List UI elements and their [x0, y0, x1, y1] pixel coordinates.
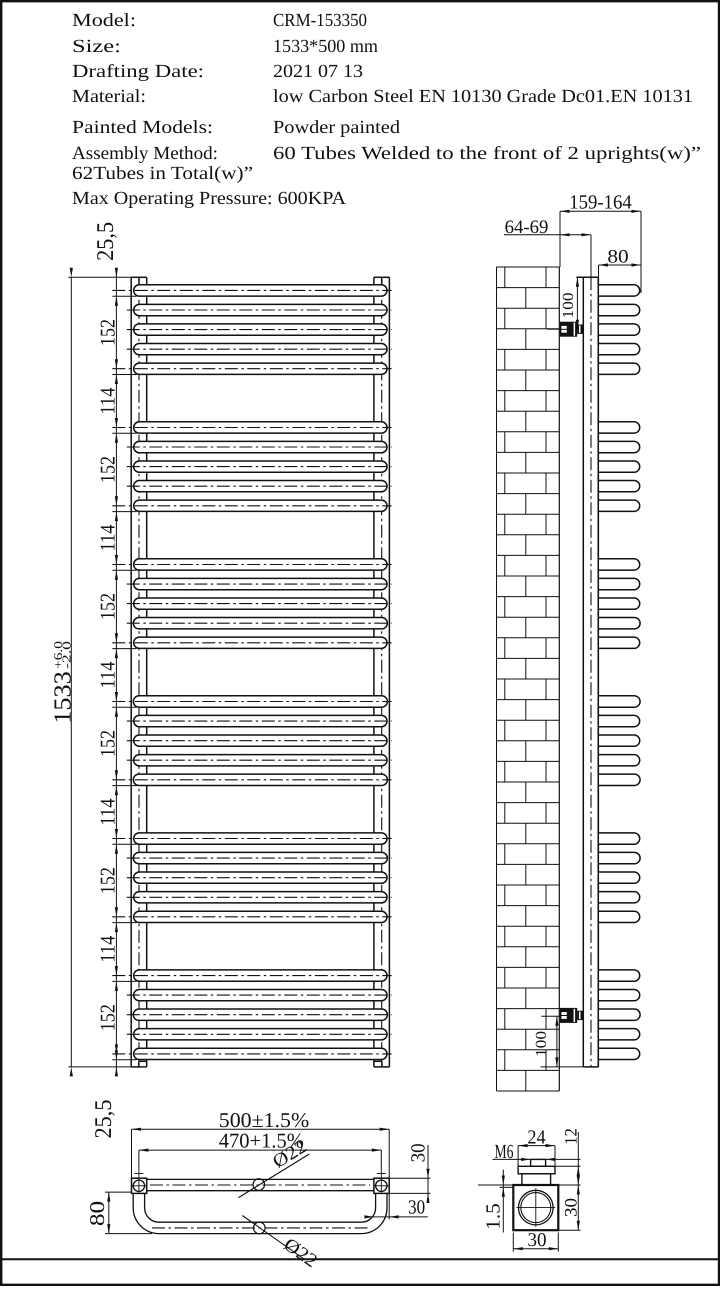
svg-text:Max Operating Pressure: 600KPA: Max Operating Pressure: 600KPA — [72, 189, 347, 209]
svg-text:114: 114 — [96, 935, 120, 962]
svg-text:-2.0: -2.0 — [60, 641, 74, 669]
svg-text:Size:: Size: — [72, 37, 121, 57]
svg-text:152: 152 — [96, 319, 120, 346]
svg-text:Drafting Date:: Drafting Date: — [72, 62, 204, 82]
svg-text:Assembly Method:: Assembly Method: — [72, 144, 218, 164]
svg-text:1533: 1533 — [49, 671, 76, 724]
svg-text:152: 152 — [95, 456, 119, 483]
svg-text:24: 24 — [527, 1127, 545, 1149]
svg-text:152: 152 — [95, 593, 119, 620]
svg-text:30: 30 — [408, 1143, 430, 1162]
svg-text:62Tubes in Total(w)”: 62Tubes in Total(w)” — [72, 164, 253, 184]
svg-text:30: 30 — [408, 1197, 425, 1219]
svg-text:30: 30 — [527, 1230, 546, 1251]
svg-text:Painted Models:: Painted Models: — [72, 118, 213, 138]
svg-text:2021 07 13: 2021 07 13 — [273, 62, 363, 82]
svg-text:159-164: 159-164 — [569, 192, 632, 214]
svg-text:CRM-153350: CRM-153350 — [273, 11, 367, 31]
svg-text:low Carbon Steel EN 10130 Gra: low Carbon Steel EN 10130 Grade Dc01.EN … — [273, 87, 693, 107]
svg-text:114: 114 — [95, 661, 119, 688]
svg-text:152: 152 — [95, 1004, 119, 1031]
svg-text:114: 114 — [96, 798, 120, 825]
svg-text:152: 152 — [96, 867, 120, 894]
svg-text:Material:: Material: — [72, 87, 146, 107]
svg-text:60 Tubes Welded to the front o: 60 Tubes Welded to the front of 2 uprigh… — [273, 144, 701, 164]
svg-text:152: 152 — [96, 730, 120, 757]
svg-text:114: 114 — [96, 387, 120, 414]
svg-text:25,5: 25,5 — [93, 222, 119, 261]
svg-text:Model:: Model: — [72, 11, 136, 31]
svg-text:30: 30 — [561, 1198, 581, 1217]
svg-text:25,5: 25,5 — [91, 1100, 117, 1139]
svg-text:12: 12 — [561, 1128, 581, 1145]
svg-text:Powder painted: Powder painted — [273, 118, 401, 138]
svg-text:100: 100 — [560, 292, 577, 318]
svg-text:80: 80 — [607, 246, 628, 267]
svg-text:114: 114 — [95, 524, 119, 551]
svg-text:100: 100 — [533, 1031, 550, 1057]
svg-text:1533*500 mm: 1533*500 mm — [273, 37, 379, 57]
svg-text:1.5: 1.5 — [483, 1203, 505, 1230]
svg-text:80: 80 — [85, 1201, 109, 1226]
svg-text:64-69: 64-69 — [505, 217, 549, 238]
